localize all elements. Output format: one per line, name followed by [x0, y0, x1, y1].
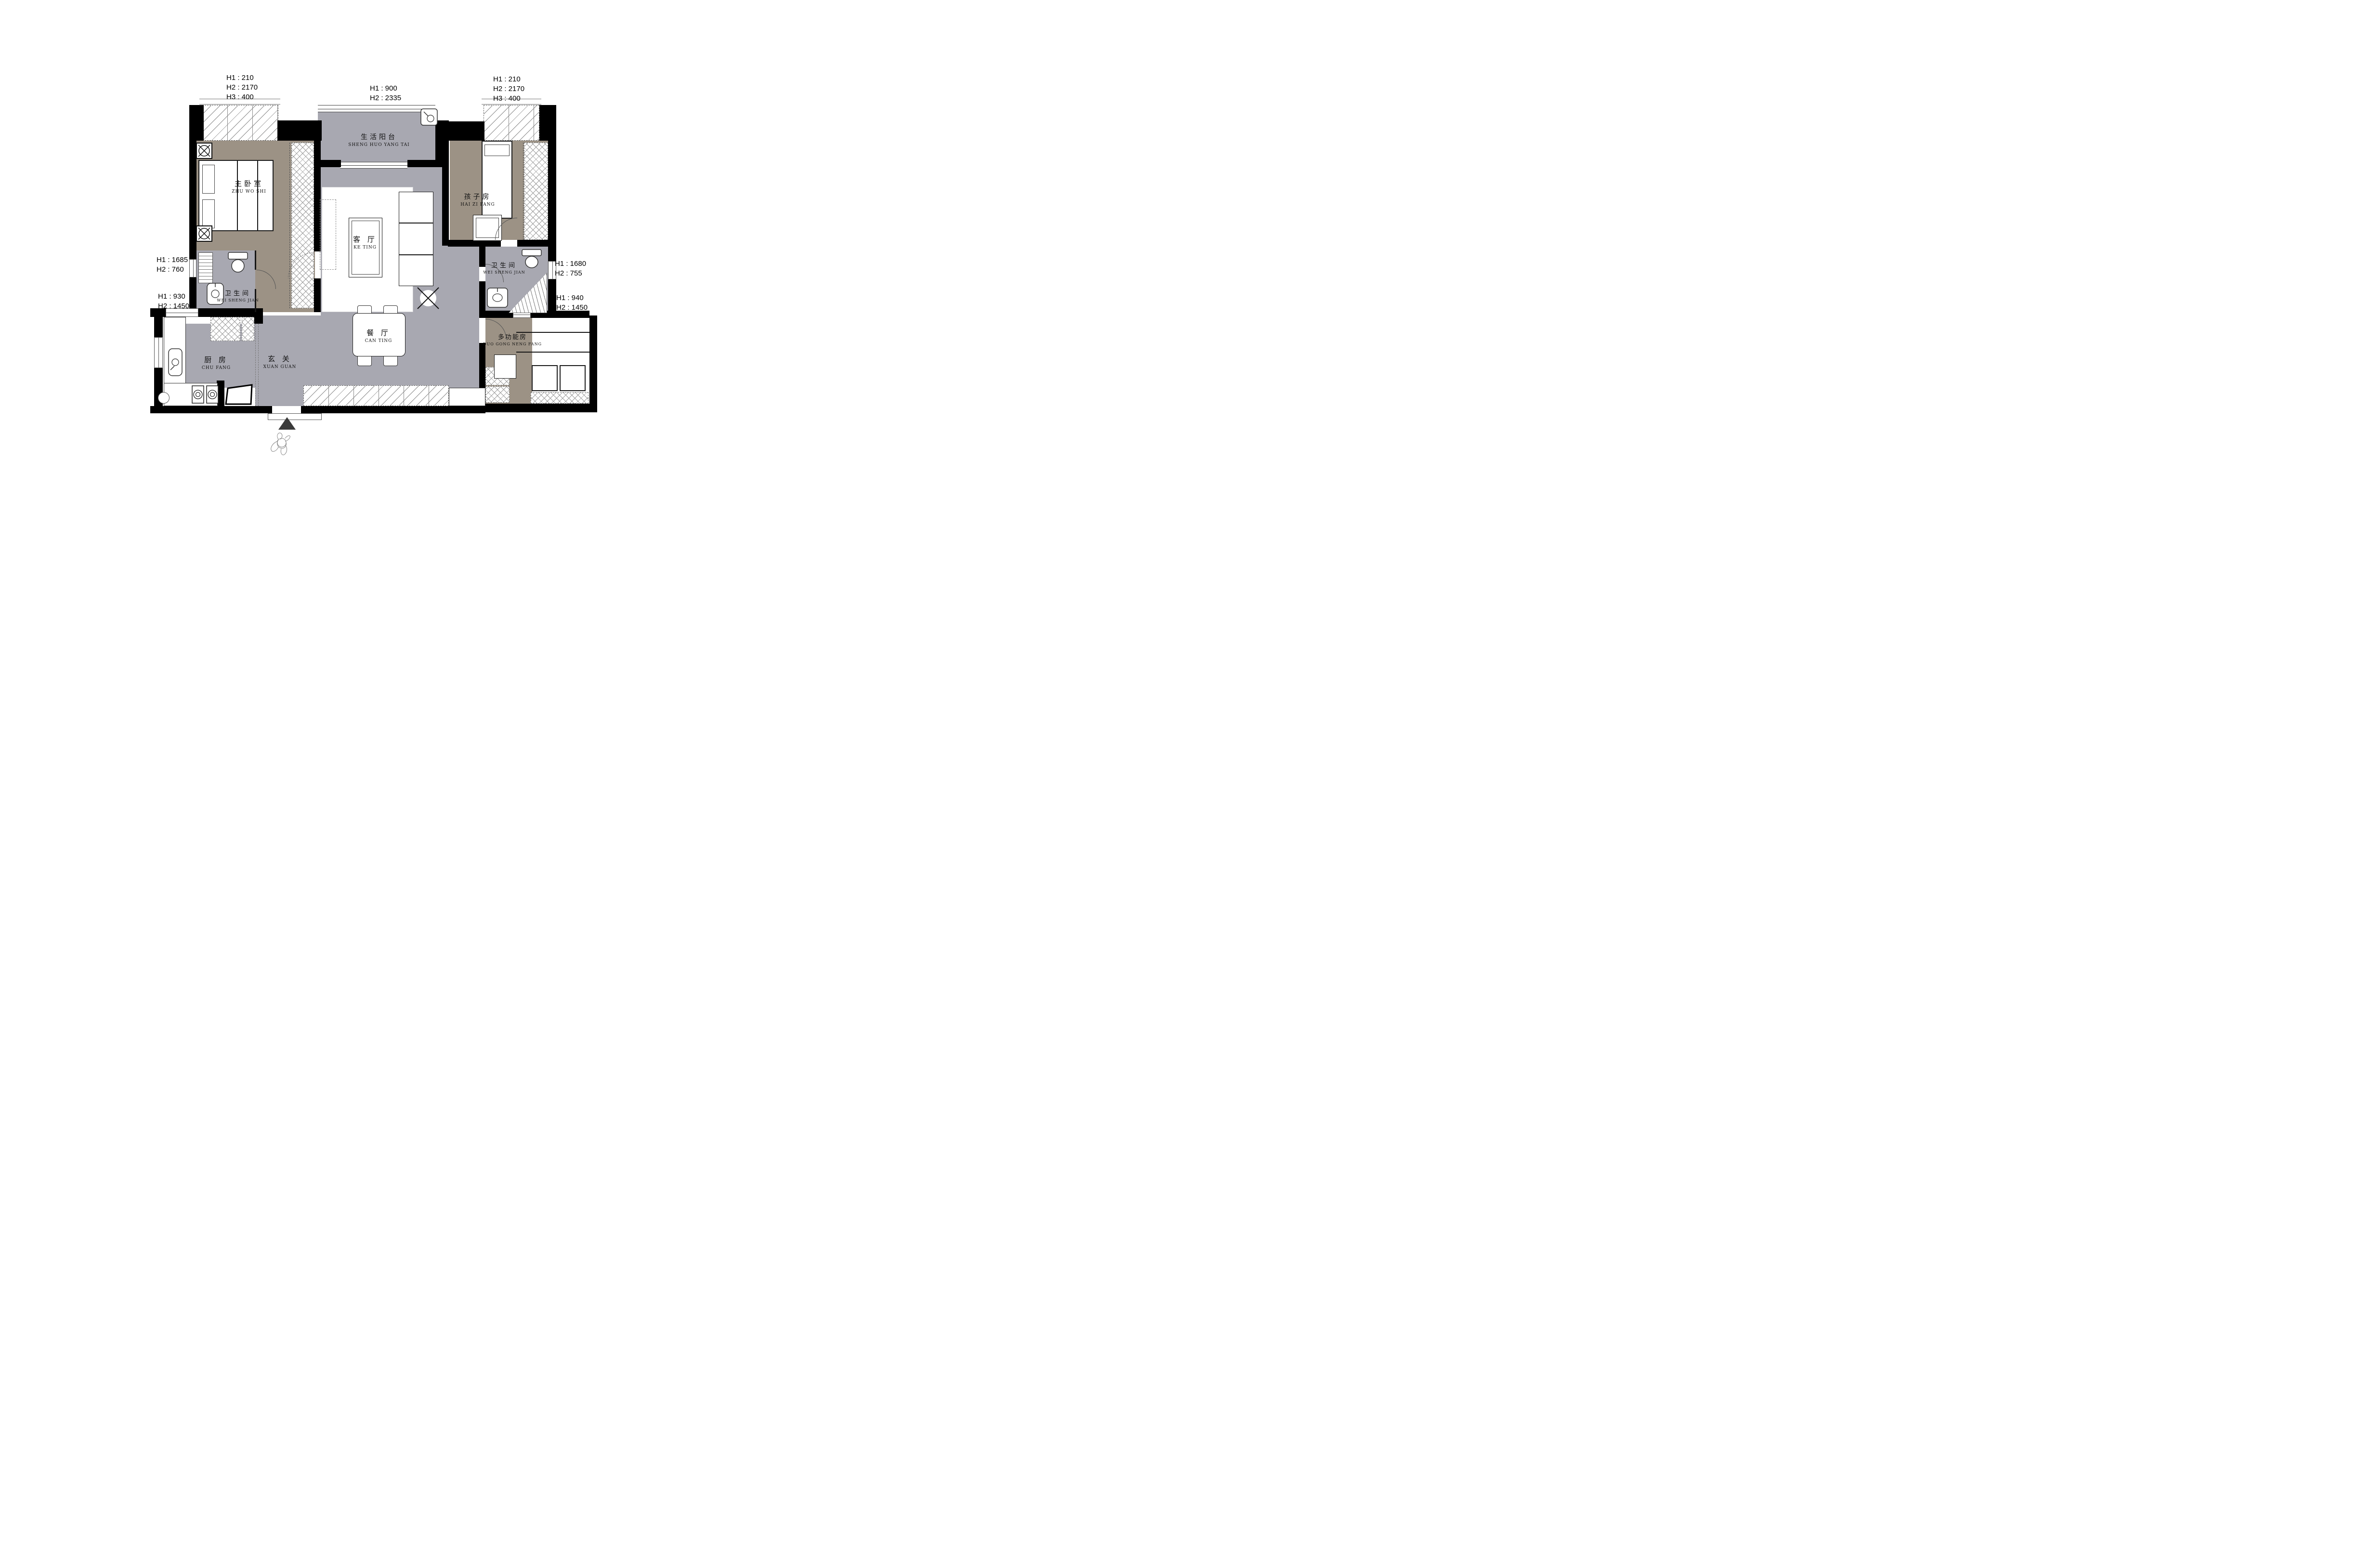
dim-line: H2 : 2335: [370, 93, 401, 103]
sofa: [399, 192, 433, 286]
wall-multi-bottom: [485, 404, 597, 412]
kitchen-sink-icon: [168, 348, 183, 377]
room-label-master: 主卧室 ZHU WO SHI: [220, 178, 278, 194]
wall-kids-top-left: [448, 121, 484, 141]
dim-line: H2 : 1450: [556, 303, 588, 313]
dim-line: H1 : 930: [158, 292, 189, 302]
room-name-en: CAN TING: [350, 339, 407, 343]
bath-left-partition-upper: [255, 250, 256, 270]
room-name-en: SHENG HUO YANG TAI: [340, 143, 418, 147]
wall-bottom-center: [301, 406, 485, 413]
wall-top-master-balcony: [277, 120, 322, 141]
balcony-sliding-door: [340, 162, 407, 169]
dim-line: H1 : 900: [370, 84, 401, 93]
room-label-bath-right: 卫生间 WEI SHENG JIAN: [475, 260, 533, 275]
floor-corridor-right: [442, 246, 479, 315]
master-pillow-2: [202, 199, 215, 228]
multi-bed-2: [560, 365, 586, 391]
toilet-icon: [227, 251, 248, 274]
window-kitchen-left: [154, 337, 163, 368]
kitchen-cabinet-hatch-small: [242, 317, 254, 341]
room-name-zh: 生活阳台: [340, 132, 418, 142]
ceiling-fan-icon: [196, 225, 212, 242]
room-label-kitchen: 厨 房 CHU FANG: [187, 355, 245, 370]
multi-storage-hatch-band: [531, 392, 588, 404]
person-figure: [266, 430, 297, 459]
stove-burner-icon: [192, 385, 204, 404]
kids-wardrobe-slider-line: [523, 143, 523, 240]
floor-entry-lower: [255, 388, 303, 406]
master-pillow-1: [202, 165, 215, 194]
multi-bed-1: [532, 365, 558, 391]
room-name-zh: 餐 厅: [350, 328, 407, 338]
entry-storage-hatch-band: [303, 385, 449, 406]
dim-line: H2 : 760: [157, 265, 188, 275]
tatami-platform-line-2: [516, 352, 589, 353]
room-name-zh: 卫生间: [209, 288, 267, 297]
sink-icon: [486, 287, 509, 308]
dim-line: H2 : 2170: [493, 84, 524, 94]
dim-line: H1 : 1685: [157, 255, 188, 265]
room-name-zh: 主卧室: [220, 178, 278, 188]
room-label-dining: 餐 厅 CAN TING: [350, 328, 407, 343]
kids-wardrobe: [524, 143, 548, 240]
entry-direction-arrow: [278, 417, 296, 430]
room-name-en: KE TING: [336, 245, 394, 250]
wall-kitchen-top: [198, 308, 255, 317]
room-name-en: DUO GONG NENG FANG: [479, 342, 546, 346]
sofa-seat-line-1: [399, 223, 433, 223]
dim-note-left-upper: H1 : 1685 H2 : 760: [157, 255, 188, 275]
wall-kids-bottom-right: [517, 240, 556, 247]
dim-note-right-lower: H1 : 940 H2 : 1450: [556, 293, 588, 313]
balcony-window-band: [318, 105, 435, 112]
dim-line: H1 : 210: [226, 73, 258, 83]
wall-top-left-corner: [189, 105, 204, 141]
bay-window-kids: [484, 105, 539, 141]
wall-bottom-left: [150, 406, 272, 413]
wall-kids-right: [548, 141, 556, 247]
kids-pillow: [484, 145, 510, 156]
wall-kids-bottom-left: [448, 240, 501, 247]
wall-top-right-corner: [539, 105, 556, 141]
room-name-zh: 玄 关: [251, 354, 309, 364]
dim-line: H3 : 400: [493, 94, 524, 104]
master-wardrobe-slider-line: [289, 143, 290, 308]
kitchen-floor-drain-icon: [158, 392, 170, 404]
shower-area-left: [198, 252, 213, 283]
multi-cabinet-hatch-2: [485, 386, 510, 403]
wall-balcony-bottom-left: [316, 160, 341, 167]
wall-master-right-lower: [314, 278, 321, 312]
room-label-kids: 孩子房 HAI ZI FANG: [449, 192, 507, 207]
room-name-en: ZHU WO SHI: [220, 189, 278, 194]
master-wardrobe: [291, 143, 314, 308]
dim-note-top-center: H1 : 900 H2 : 2335: [370, 84, 401, 103]
wall-multi-top-left: [479, 311, 513, 318]
multi-desk: [494, 355, 516, 379]
kitchen-cabinet-hatch-large: [210, 317, 240, 341]
room-name-en: WEI SHENG JIAN: [209, 298, 267, 302]
wall-kitchen-left-upper: [154, 315, 163, 337]
dim-line: H1 : 940: [556, 293, 588, 303]
dim-note-right-upper: H1 : 1680 H2 : 755: [555, 259, 586, 278]
floor-drain-icon: [416, 286, 440, 310]
wall-left-upper: [189, 141, 196, 259]
room-label-bath-left: 卫生间 WEI SHENG JIAN: [209, 288, 267, 302]
floor-plan-canvas: 主卧室 ZHU WO SHI 生活阳台 SHENG HUO YANG TAI 孩…: [0, 0, 744, 492]
room-name-zh: 客 厅: [336, 234, 394, 244]
room-name-en: HAI ZI FANG: [449, 202, 507, 207]
dim-line: H2 : 1450: [158, 302, 189, 311]
room-name-en: CHU FANG: [187, 366, 245, 370]
sofa-seat-line-2: [399, 254, 433, 255]
bay-window-master: [202, 105, 278, 141]
dim-line: H2 : 2170: [226, 83, 258, 92]
wall-living-right: [442, 167, 449, 246]
dim-note-left-lower: H1 : 930 H2 : 1450: [158, 292, 189, 311]
master-bed-fold-line-1: [237, 160, 238, 231]
room-name-zh: 孩子房: [449, 192, 507, 201]
dim-note-top-left: H1 : 210 H2 : 2170 H3 : 400: [226, 73, 258, 102]
room-name-zh: 卫生间: [475, 260, 533, 269]
dim-line: H3 : 400: [226, 92, 258, 102]
tv-cabinet-outline: [320, 199, 336, 270]
dim-note-top-right: H1 : 210 H2 : 2170 H3 : 400: [493, 75, 524, 104]
room-label-multi: 多功能房 DUO GONG NENG FANG: [479, 332, 546, 346]
wall-left-lower: [189, 277, 196, 312]
stove-burner-icon: [206, 385, 219, 404]
room-name-en: WEI SHENG JIAN: [475, 270, 533, 275]
kitchen-door-leaf: [224, 383, 254, 406]
dim-line: H2 : 755: [555, 269, 586, 278]
wall-balcony-bottom-right: [407, 160, 449, 167]
room-label-entry: 玄 关 XUAN GUAN: [251, 354, 309, 369]
room-label-living: 客 厅 KE TING: [336, 234, 394, 250]
ceiling-fan-icon: [196, 143, 212, 159]
room-name-zh: 厨 房: [187, 355, 245, 365]
room-label-balcony: 生活阳台 SHENG HUO YANG TAI: [340, 132, 418, 147]
dim-line: H1 : 1680: [555, 259, 586, 269]
balcony-basin-icon: [420, 108, 438, 126]
room-name-zh: 多功能房: [479, 332, 546, 341]
dim-line: H1 : 210: [493, 75, 524, 84]
room-name-en: XUAN GUAN: [251, 365, 309, 369]
wall-multi-right: [589, 315, 597, 412]
window-master-left: [189, 259, 196, 277]
exterior-notch: [449, 388, 485, 406]
master-bed-fold-line-2: [257, 160, 258, 231]
